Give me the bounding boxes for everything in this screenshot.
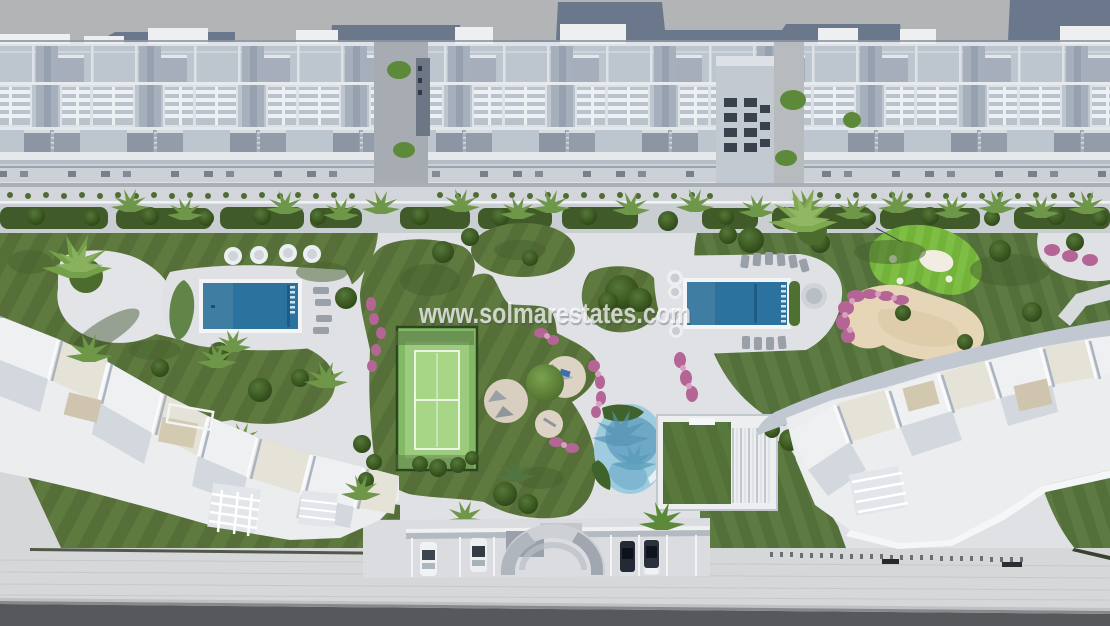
svg-text:www.solmarestates.com: www.solmarestates.com (418, 298, 691, 330)
